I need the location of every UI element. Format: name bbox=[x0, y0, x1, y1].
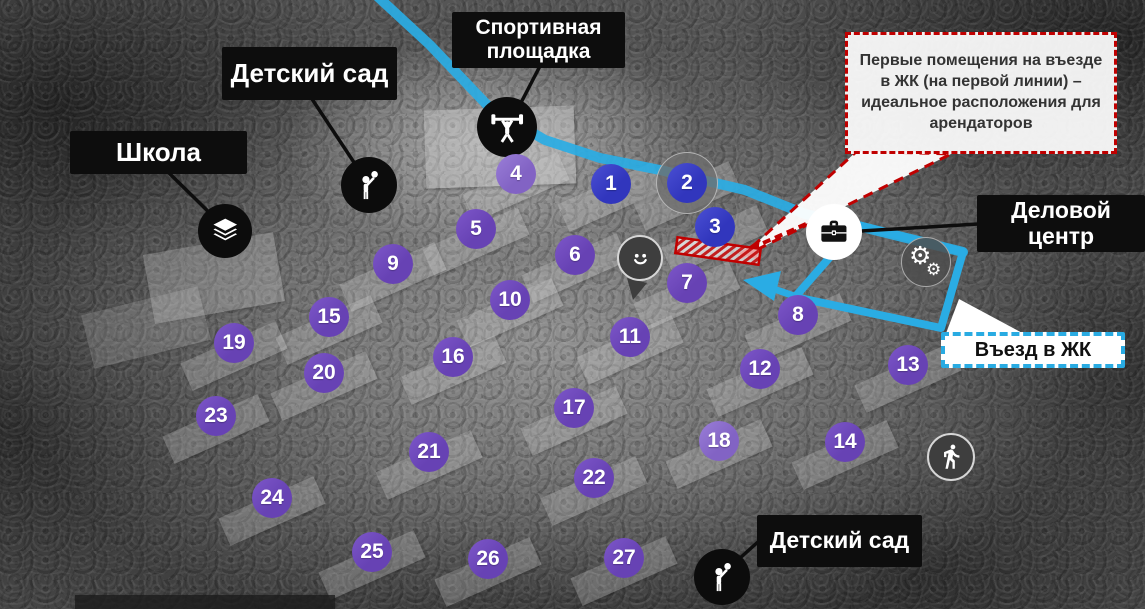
building-marker-17: 17 bbox=[554, 388, 594, 428]
building-marker-11: 11 bbox=[610, 317, 650, 357]
building-marker-23: 23 bbox=[196, 396, 236, 436]
building-marker-2: 2 bbox=[667, 163, 707, 203]
masterplan-map: Первые помещения на въезде в ЖК (на перв… bbox=[0, 0, 1145, 609]
first-line-callout: Первые помещения на въезде в ЖК (на перв… bbox=[845, 32, 1117, 154]
building-marker-15: 15 bbox=[309, 297, 349, 337]
building-marker-21: 21 bbox=[409, 432, 449, 472]
building-marker-18: 18 bbox=[699, 421, 739, 461]
label-kindergarten-top: Детский сад bbox=[222, 47, 397, 100]
building-marker-24: 24 bbox=[252, 478, 292, 518]
label-kindergarten-bottom: Детский сад bbox=[757, 515, 922, 567]
label-school: Школа bbox=[70, 131, 247, 174]
smiley-pin-tail bbox=[627, 278, 647, 300]
building-marker-16: 16 bbox=[433, 337, 473, 377]
building-marker-4: 4 bbox=[496, 154, 536, 194]
building-marker-19: 19 bbox=[214, 323, 254, 363]
walk-icon bbox=[927, 433, 975, 481]
building-marker-12: 12 bbox=[740, 349, 780, 389]
building-marker-13: 13 bbox=[888, 345, 928, 385]
building-marker-14: 14 bbox=[825, 422, 865, 462]
label-sports-ground: Спортивная площадка bbox=[452, 12, 625, 68]
briefcase-icon bbox=[806, 204, 862, 260]
gears-icon: ⚙⚙ bbox=[901, 237, 951, 287]
entrance-arrowhead bbox=[743, 271, 781, 301]
building-marker-20: 20 bbox=[304, 353, 344, 393]
sports-icon bbox=[477, 97, 537, 157]
label-business-center: Деловой центр bbox=[977, 195, 1145, 252]
kindergarten-top-icon bbox=[341, 157, 397, 213]
label-entrance: Въезд в ЖК bbox=[941, 332, 1125, 368]
building-marker-25: 25 bbox=[352, 532, 392, 572]
smiley-icon bbox=[617, 235, 663, 281]
building-marker-22: 22 bbox=[574, 458, 614, 498]
kindergarten-bottom-icon bbox=[694, 549, 750, 605]
building-marker-6: 6 bbox=[555, 235, 595, 275]
building-marker-9: 9 bbox=[373, 244, 413, 284]
building-marker-8: 8 bbox=[778, 295, 818, 335]
building-marker-10: 10 bbox=[490, 280, 530, 320]
school-icon bbox=[198, 204, 252, 258]
building-marker-26: 26 bbox=[468, 539, 508, 579]
building-marker-3: 3 bbox=[695, 207, 735, 247]
building-marker-1: 1 bbox=[591, 164, 631, 204]
entrance-label-pointer bbox=[945, 299, 1028, 336]
building-marker-5: 5 bbox=[456, 209, 496, 249]
building-marker-27: 27 bbox=[604, 538, 644, 578]
building-marker-7: 7 bbox=[667, 263, 707, 303]
